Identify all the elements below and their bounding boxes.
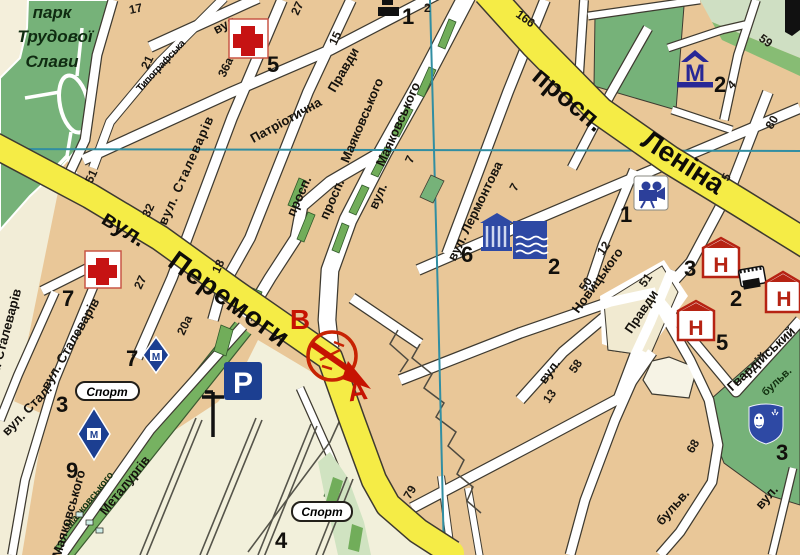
- svg-text:2: 2: [548, 254, 560, 279]
- svg-text:1: 1: [402, 4, 414, 29]
- svg-text:1: 1: [620, 202, 632, 227]
- svg-text:Слави: Слави: [26, 52, 80, 71]
- svg-text:Н: Н: [776, 288, 791, 311]
- svg-text:7: 7: [62, 286, 74, 311]
- svg-text:2: 2: [714, 72, 726, 97]
- svg-text:5: 5: [267, 52, 279, 77]
- svg-text:М: М: [90, 430, 98, 441]
- svg-text:Трудової: Трудової: [17, 27, 94, 46]
- svg-text:Н: Н: [688, 317, 703, 340]
- svg-text:3: 3: [776, 440, 788, 465]
- svg-text:Спорт: Спорт: [86, 385, 128, 399]
- svg-text:А: А: [346, 375, 369, 407]
- svg-text:парк: парк: [33, 3, 73, 22]
- svg-text:М: М: [152, 352, 160, 363]
- svg-text:4: 4: [275, 528, 288, 553]
- svg-text:2: 2: [424, 1, 431, 15]
- svg-text:3: 3: [56, 392, 68, 417]
- svg-text:9: 9: [66, 458, 78, 483]
- svg-text:6: 6: [461, 242, 473, 267]
- svg-text:В: В: [290, 304, 310, 335]
- svg-text:Р: Р: [233, 367, 253, 400]
- svg-text:7: 7: [126, 346, 138, 371]
- svg-text:5: 5: [716, 330, 728, 355]
- svg-text:Н: Н: [713, 254, 728, 277]
- svg-text:2: 2: [730, 286, 742, 311]
- svg-text:3: 3: [684, 256, 696, 281]
- svg-text:Спорт: Спорт: [301, 505, 343, 519]
